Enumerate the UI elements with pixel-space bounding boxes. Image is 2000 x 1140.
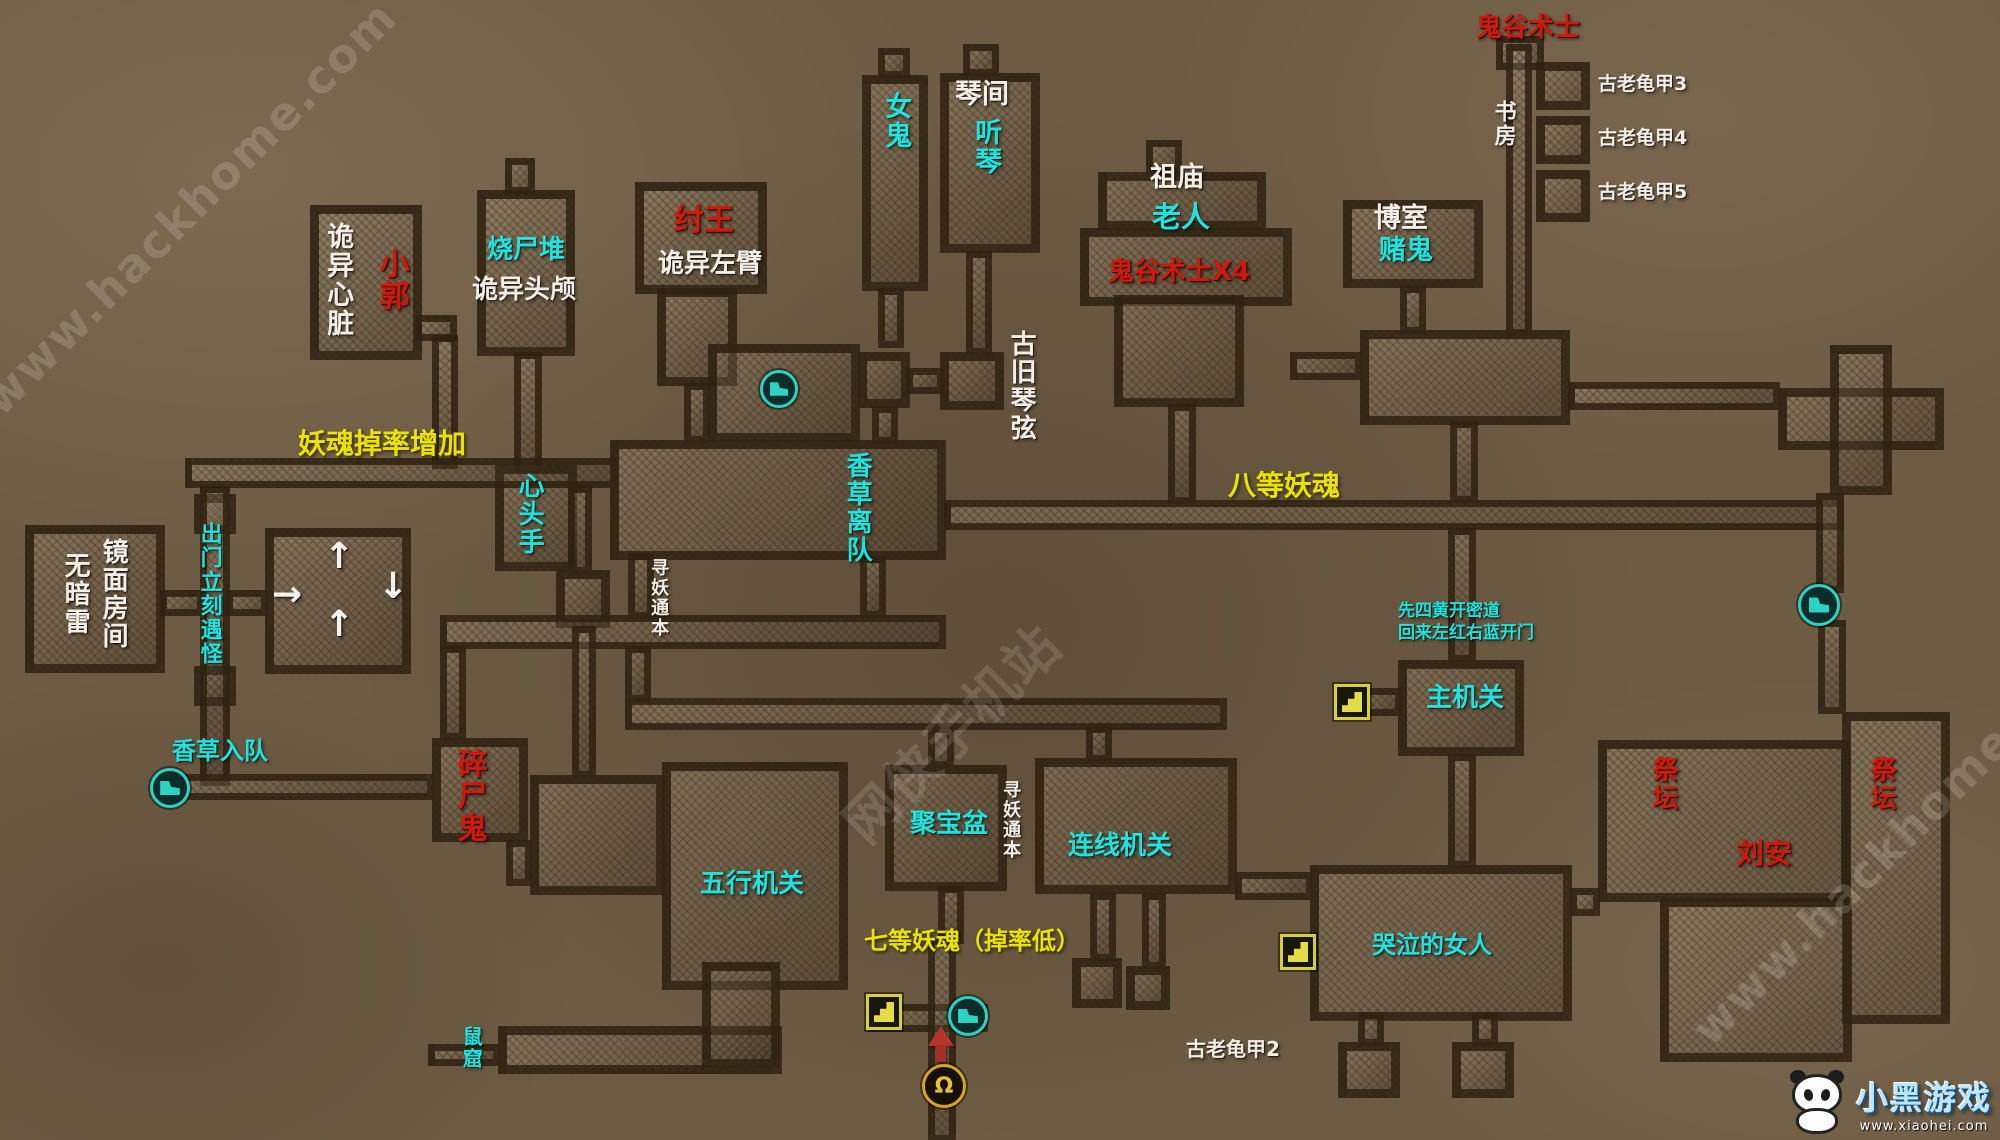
corridor-pyre-down — [514, 352, 542, 472]
label-soul8: 八等妖魂 — [1228, 470, 1340, 501]
boot-marker-icon-mid — [760, 370, 798, 408]
label-treasure-bowl: 聚宝盆 — [910, 810, 988, 839]
room-altar-wing — [1842, 712, 1950, 1024]
arrow-down-icon: ↓ — [378, 566, 408, 607]
corridor-temple-complex — [1290, 352, 1362, 380]
label-crying-woman: 哭泣的女人 — [1372, 932, 1492, 959]
magnet-icon: Ω — [922, 1064, 966, 1108]
arrow-right-icon: → — [272, 574, 302, 615]
label-weird-skull: 诡异头颅 — [472, 276, 576, 305]
label-ancestral-temple: 祖庙 — [1150, 163, 1204, 193]
label-listen-qin: 听琴 — [970, 118, 1000, 176]
label-weird-heart: 诡异心脏 — [322, 222, 352, 338]
boot-marker-icon-diamond — [1798, 584, 1840, 626]
room-mirror — [25, 525, 165, 673]
corridor-diamond-down — [1816, 493, 1844, 593]
label-herb-leave: 香草离队 — [842, 452, 871, 564]
hand-switch-icon-bottom — [866, 994, 902, 1030]
label-gamble-ghost: 赌鬼 — [1379, 236, 1433, 266]
corridor-bowl-top — [928, 726, 954, 768]
corridor-wire-top — [1086, 726, 1112, 762]
label-wire-puzzle: 连线机关 — [1068, 832, 1172, 861]
site-logo: 小黑游戏 www.xiaohei.com — [1786, 1070, 1992, 1136]
panda-eye-right — [1820, 1088, 1832, 1102]
corridor-main-left-down — [440, 646, 466, 740]
room-below-ancestral — [1114, 295, 1244, 407]
corridor-gamble-down — [1400, 286, 1426, 334]
label-study: 书房 — [1490, 100, 1515, 148]
corridor-qin-down — [966, 251, 992, 355]
label-corpse-pyre: 烧尸堆 — [487, 236, 565, 265]
corridor-shredder-down — [506, 840, 532, 886]
room-small-a — [1072, 958, 1122, 1008]
label-turtle4: 古老龟甲4 — [1598, 128, 1687, 149]
corridor-chain-down — [572, 626, 596, 778]
corridor-soul-drop — [185, 458, 617, 488]
hand-switch-icon-crying — [1280, 934, 1316, 970]
room-junction-a — [940, 352, 1004, 410]
corridor-wire-down-a — [1090, 893, 1116, 961]
label-no-mine: 无暗雷 — [60, 552, 89, 636]
label-weird-left-arm: 诡异左臂 — [658, 250, 762, 279]
corridor-complex-diamond — [1568, 382, 1780, 410]
room-wire-puzzle — [1035, 758, 1237, 894]
corridor-main-switch-down — [1448, 754, 1476, 868]
corridor-ancestral-down — [1168, 404, 1196, 504]
corridor-zhou-down — [684, 383, 710, 443]
logo-site-url: www.xiaohei.com — [1860, 1119, 1989, 1134]
room-under-crying-b — [1452, 1042, 1514, 1098]
corridor-soul8 — [944, 500, 1844, 530]
room-under-crying-a — [1338, 1042, 1400, 1098]
arrow-up-icon: ↑ — [324, 536, 354, 577]
corridor-diamond-wing — [1818, 620, 1846, 714]
label-five-elements: 五行机关 — [700, 870, 804, 899]
label-turtle3: 古老龟甲3 — [1598, 74, 1687, 95]
label-old-man: 老人 — [1152, 201, 1210, 233]
corridor-complex-down — [1450, 421, 1478, 503]
corridor-bowtie — [906, 368, 944, 394]
label-seek-book-1: 寻妖通本 — [648, 558, 668, 638]
corridor-pyre-top — [505, 158, 535, 194]
corridor-arrows-link — [226, 590, 268, 616]
boot-marker-icon-herb — [150, 768, 190, 808]
label-old-qin-string: 古旧琴弦 — [1006, 330, 1035, 442]
label-turtle5: 古老龟甲5 — [1598, 182, 1687, 203]
label-rat-hole: 鼠窟 — [460, 1026, 482, 1070]
panda-body — [1796, 1108, 1838, 1134]
room-corpse-pyre — [477, 190, 575, 356]
label-xiao-guo: 小郭 — [374, 248, 408, 312]
label-turtle2: 古老龟甲2 — [1186, 1038, 1280, 1060]
label-king-zhou: 纣王 — [674, 204, 734, 238]
label-main-switch: 主机关 — [1426, 684, 1504, 713]
panda-eye-left — [1803, 1088, 1815, 1102]
room-turtle4 — [1536, 116, 1590, 164]
room-diamond-v — [1830, 345, 1892, 495]
arrow-up2-icon: ↑ — [324, 604, 354, 645]
corridor-study — [1506, 44, 1532, 336]
room-small-b — [1126, 966, 1170, 1010]
label-heart-head-hand: 心头手 — [514, 472, 543, 556]
corridor-hall-stub-b — [860, 556, 886, 618]
room-junction-b — [858, 352, 910, 408]
room-turtle5 — [1536, 170, 1590, 222]
label-qin-chamber: 琴间 — [955, 80, 1009, 110]
red-up-arrow-icon — [928, 1026, 954, 1064]
corridor-herb-join — [172, 774, 434, 800]
label-seek-book-2: 寻妖通本 — [1000, 780, 1020, 860]
label-exit-monster: 出门立刻遇怪 — [196, 522, 221, 666]
magnet-glyph: Ω — [935, 1074, 954, 1099]
stub-qin-top — [963, 44, 999, 76]
room-altar-main — [1598, 740, 1850, 902]
corridor-main-upper — [440, 615, 946, 649]
room-central-hall — [610, 440, 946, 560]
label-guigu-warlock: 鬼谷术士 — [1476, 14, 1580, 43]
label-altar-right: 祭坛 — [1866, 756, 1895, 812]
label-soul7: 七等妖魂（掉率低） — [864, 928, 1080, 955]
corridor-crying-down-a — [1358, 1012, 1384, 1046]
corridor-junction-down — [872, 406, 898, 444]
room-right-complex — [1360, 330, 1570, 425]
corridor-wire-down-b — [1142, 893, 1166, 969]
room-altar-bottom — [1660, 898, 1852, 1062]
label-guigu-x4: 鬼谷术士X4 — [1108, 258, 1250, 287]
label-note-line2: 回来左红右蓝开门 — [1398, 624, 1534, 643]
label-gamble-room: 博室 — [1374, 204, 1428, 234]
label-shredder-ghost: 碎尸鬼 — [452, 748, 486, 844]
logo-text-block: 小黑游戏 www.xiaohei.com — [1856, 1073, 1992, 1136]
label-liu-an: 刘安 — [1736, 838, 1792, 869]
room-five-elements-left — [530, 775, 665, 895]
corridor-main-lower — [625, 698, 1227, 730]
hand-switch-icon-main — [1334, 684, 1370, 720]
label-mirror-room: 镜面房间 — [98, 538, 127, 650]
corridor-crying-altar — [1570, 888, 1600, 916]
stub-female-ghost-top — [878, 48, 910, 78]
room-turtle3 — [1536, 62, 1590, 110]
room-bottom-riser — [702, 962, 780, 1068]
corridor-ghost-down — [878, 288, 904, 348]
label-note-line1: 先四黄开密道 — [1398, 602, 1500, 621]
label-female-ghost: 女鬼 — [880, 92, 910, 150]
corridor-main-link — [625, 646, 651, 702]
label-herb-join: 香草入队 — [172, 738, 268, 765]
logo-brand-text: 小黑游戏 — [1856, 1073, 1992, 1119]
corridor-crying-down-b — [1472, 1012, 1498, 1046]
panda-mascot-icon — [1786, 1070, 1848, 1136]
dungeon-map: 诡异心脏 小郭 烧尸堆 诡异头颅 纣王 诡异左臂 女鬼 琴间 听琴 祖庙 老人 … — [0, 0, 2000, 1140]
label-altar-left: 祭坛 — [1648, 756, 1677, 812]
boot-marker-icon-bottom — [948, 996, 988, 1036]
corridor-chain-top — [568, 486, 592, 574]
corridor-wire-crying — [1235, 872, 1313, 900]
label-soul-drop-up: 妖魂掉率增加 — [298, 428, 466, 459]
